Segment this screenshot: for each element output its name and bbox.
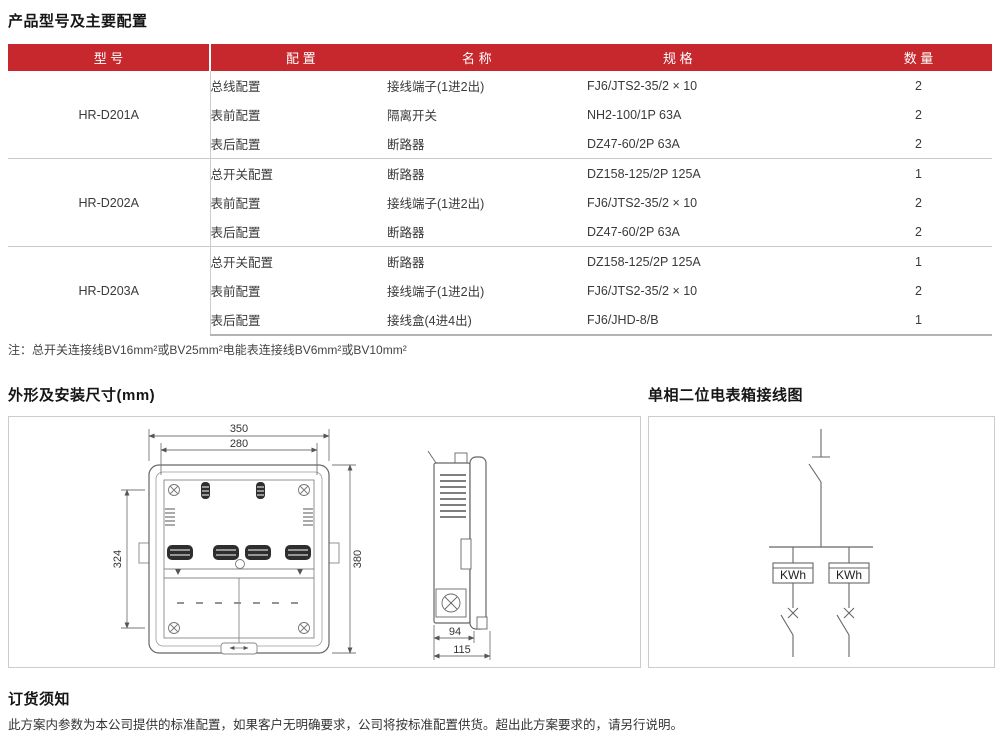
table-row: HR-D201A 总线配置 接线端子(1进2出) FJ6/JTS2-35/2 ×… <box>8 71 992 100</box>
dim-label-115: 115 <box>453 644 471 656</box>
dim-label-350: 350 <box>230 423 248 435</box>
spec-cell: DZ47-60/2P 63A <box>587 217 845 247</box>
meter-label: KWh <box>780 568 806 582</box>
front-view-drawing <box>139 465 339 654</box>
qty-cell: 2 <box>845 217 992 247</box>
spec-cell: DZ158-125/2P 125A <box>587 247 845 277</box>
name-cell: 断路器 <box>387 129 587 159</box>
qty-cell: 1 <box>845 159 992 189</box>
table-header-row: 型 号 配 置 名 称 规 格 数 量 <box>8 44 992 71</box>
config-cell: 总开关配置 <box>210 247 387 277</box>
wiring-panel: KWh KWh <box>648 416 995 668</box>
config-cell: 表前配置 <box>210 100 387 129</box>
config-cell: 表后配置 <box>210 217 387 247</box>
name-cell: 断路器 <box>387 217 587 247</box>
name-cell: 接线端子(1进2出) <box>387 188 587 217</box>
spec-cell: FJ6/JTS2-35/2 × 10 <box>587 71 845 100</box>
ordering-section-title: 订货须知 <box>8 688 70 709</box>
dim-label-280: 280 <box>230 438 248 450</box>
name-cell: 接线盒(4进4出) <box>387 305 587 335</box>
dim-label-324: 324 <box>112 550 124 568</box>
config-cell: 总线配置 <box>210 71 387 100</box>
model-cell: HR-D202A <box>8 159 210 247</box>
col-header-spec: 规 格 <box>587 44 845 71</box>
spec-cell: FJ6/JHD-8/B <box>587 305 845 335</box>
name-cell: 接线端子(1进2出) <box>387 276 587 305</box>
col-header-config: 配 置 <box>210 44 387 71</box>
wiring-section-title: 单相二位电表箱接线图 <box>648 384 803 405</box>
qty-cell: 2 <box>845 129 992 159</box>
qty-cell: 2 <box>845 276 992 305</box>
table-row: HR-D202A 总开关配置 断路器 DZ158-125/2P 125A 1 <box>8 159 992 189</box>
qty-cell: 1 <box>845 305 992 335</box>
table-note: 注：总开关连接线BV16mm²或BV25mm²电能表连接线BV6mm²或BV10… <box>8 341 407 358</box>
spec-cell: DZ47-60/2P 63A <box>587 129 845 159</box>
meter-label: KWh <box>836 568 862 582</box>
qty-cell: 2 <box>845 188 992 217</box>
col-header-model: 型 号 <box>8 44 210 71</box>
side-view-drawing <box>428 451 487 629</box>
outline-dimension-drawing: 350 280 324 380 <box>9 417 640 667</box>
config-cell: 表前配置 <box>210 188 387 217</box>
config-cell: 表后配置 <box>210 129 387 159</box>
qty-cell: 2 <box>845 100 992 129</box>
config-cell: 表后配置 <box>210 305 387 335</box>
col-header-name: 名 称 <box>387 44 587 71</box>
table-row: HR-D203A 总开关配置 断路器 DZ158-125/2P 125A 1 <box>8 247 992 277</box>
page-title: 产品型号及主要配置 <box>8 10 148 31</box>
ordering-note-text: 此方案内参数为本公司提供的标准配置，如果客户无明确要求，公司将按标准配置供货。超… <box>8 714 996 733</box>
dim-label-94: 94 <box>449 626 461 638</box>
name-cell: 接线端子(1进2出) <box>387 71 587 100</box>
model-cell: HR-D201A <box>8 71 210 159</box>
dimensions-section-title: 外形及安装尺寸(mm) <box>8 384 155 405</box>
product-config-table: 型 号 配 置 名 称 规 格 数 量 HR-D201A 总线配置 接线端子(1… <box>8 44 992 336</box>
spec-cell: NH2-100/1P 63A <box>587 100 845 129</box>
dim-label-380: 380 <box>352 550 364 568</box>
qty-cell: 2 <box>845 71 992 100</box>
config-cell: 表前配置 <box>210 276 387 305</box>
name-cell: 断路器 <box>387 159 587 189</box>
name-cell: 隔离开关 <box>387 100 587 129</box>
wiring-diagram: KWh KWh <box>649 417 994 667</box>
spec-cell: FJ6/JTS2-35/2 × 10 <box>587 276 845 305</box>
model-cell: HR-D203A <box>8 247 210 336</box>
qty-cell: 1 <box>845 247 992 277</box>
dimensions-panel: 350 280 324 380 <box>8 416 641 668</box>
config-cell: 总开关配置 <box>210 159 387 189</box>
col-header-qty: 数 量 <box>845 44 992 71</box>
spec-cell: DZ158-125/2P 125A <box>587 159 845 189</box>
spec-cell: FJ6/JTS2-35/2 × 10 <box>587 188 845 217</box>
name-cell: 断路器 <box>387 247 587 277</box>
